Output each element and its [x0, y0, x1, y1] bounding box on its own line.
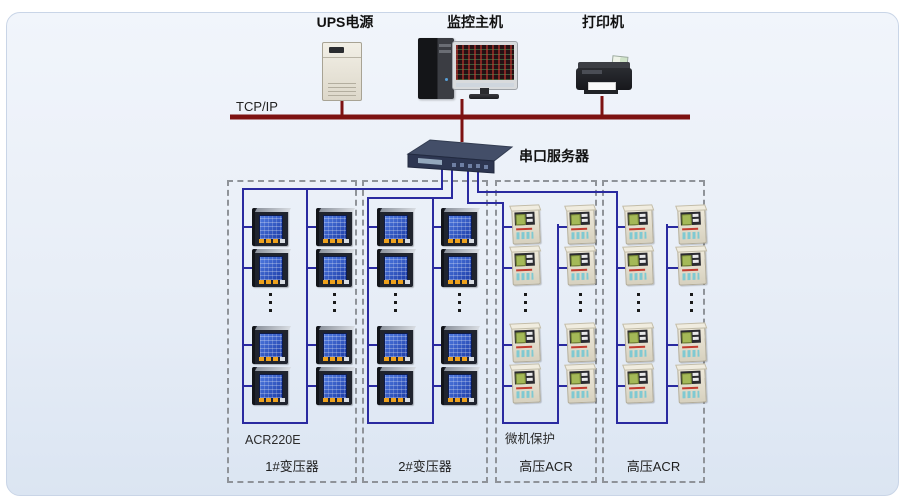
- relay-keypad: [571, 273, 588, 281]
- ellipsis-dots: [524, 293, 527, 317]
- power-meter: [377, 367, 413, 405]
- relay-lcd-screen: [628, 214, 638, 225]
- relay-lcd-screen: [628, 373, 638, 384]
- relay-panel: [627, 330, 648, 344]
- relay-label-strip: [516, 228, 532, 231]
- meter-lcd-screen: [323, 215, 347, 240]
- power-meter: [441, 326, 477, 364]
- relay-label-strip: [516, 387, 532, 390]
- relay-top-cover: [675, 245, 707, 252]
- power-meter: [377, 326, 413, 364]
- relay-panel: [627, 371, 648, 385]
- relay-label-strip: [516, 346, 532, 349]
- meter-buttons: [323, 357, 349, 361]
- meter-lcd-screen: [448, 256, 472, 281]
- power-meter: [316, 208, 352, 246]
- relay-lcd-screen: [515, 214, 525, 225]
- serial-server-device: [404, 134, 516, 176]
- protection-relay-meter: [677, 325, 707, 362]
- ellipsis-dots: [690, 293, 693, 317]
- relay-lcd-screen: [681, 255, 691, 266]
- meter-buttons: [384, 280, 410, 284]
- printer-device: [576, 56, 632, 97]
- power-meter: [316, 249, 352, 287]
- relay-keypad: [571, 232, 588, 240]
- serial-server-graphic: [404, 134, 516, 176]
- ellipsis-dots: [394, 293, 397, 317]
- relay-label-strip: [571, 269, 587, 272]
- monitor-bezel: [452, 41, 518, 90]
- relay-panel: [514, 371, 535, 385]
- relay-panel: [680, 371, 701, 385]
- power-meter: [377, 208, 413, 246]
- relay-lcd-screen: [515, 255, 525, 266]
- relay-panel: [680, 253, 701, 267]
- protection-relay-meter: [566, 325, 596, 362]
- meter-top-bezel: [255, 367, 291, 371]
- power-meter: [441, 249, 477, 287]
- meter-buttons: [448, 280, 474, 284]
- meter-lcd-screen: [384, 256, 408, 281]
- relay-lcd-screen: [570, 255, 580, 266]
- meter-top-bezel: [255, 326, 291, 330]
- relay-lcd-screen: [570, 214, 580, 225]
- relay-top-cover: [675, 322, 707, 329]
- relay-keypad: [629, 232, 646, 240]
- protection-relay-meter: [511, 366, 541, 403]
- relay-top-cover: [622, 204, 654, 211]
- relay-top-cover: [564, 245, 596, 252]
- relay-label-strip: [629, 346, 645, 349]
- protection-relay-meter: [566, 207, 596, 244]
- power-meter: [441, 367, 477, 405]
- protection-relay-meter: [566, 366, 596, 403]
- meter-lcd-screen: [259, 333, 283, 358]
- relay-keypad: [571, 350, 588, 358]
- relay-keypad: [629, 391, 646, 399]
- relay-keypad: [682, 273, 699, 281]
- meter-lcd-screen: [448, 374, 472, 399]
- power-meter: [377, 249, 413, 287]
- meter-top-bezel: [255, 208, 291, 212]
- relay-panel: [627, 212, 648, 226]
- ellipsis-dots: [637, 293, 640, 317]
- power-meter: [252, 249, 288, 287]
- monitor-host-label: 监控主机: [405, 12, 545, 32]
- relay-keypad: [516, 273, 533, 281]
- meter-lcd-screen: [259, 256, 283, 281]
- meter-top-bezel: [444, 249, 480, 253]
- meter-top-bezel: [319, 208, 355, 212]
- protection-relay-meter: [624, 366, 654, 403]
- meter-buttons: [259, 398, 285, 402]
- relay-panel: [680, 212, 701, 226]
- relay-top-cover: [622, 322, 654, 329]
- meter-buttons: [448, 398, 474, 402]
- meter-lcd-screen: [323, 374, 347, 399]
- relay-top-cover: [675, 204, 707, 211]
- relay-top-cover: [509, 204, 541, 211]
- monitor-stand-base: [469, 94, 499, 99]
- relay-lcd-screen: [681, 214, 691, 225]
- power-meter: [252, 326, 288, 364]
- ellipsis-dots: [579, 293, 582, 317]
- meter-top-bezel: [380, 208, 416, 212]
- relay-keypad: [571, 391, 588, 399]
- meter-buttons: [448, 357, 474, 361]
- host-tower-device: [418, 38, 454, 99]
- power-meter: [441, 208, 477, 246]
- diagram-canvas: UPS电源 监控主机 打印机 TCP/IP 串口服务器: [0, 0, 905, 503]
- relay-keypad: [516, 391, 533, 399]
- relay-top-cover: [564, 363, 596, 370]
- power-meter: [252, 208, 288, 246]
- meter-buttons: [323, 239, 349, 243]
- relay-label-strip: [682, 228, 698, 231]
- meter-top-bezel: [444, 326, 480, 330]
- tower-power-led: [445, 78, 448, 81]
- meter-buttons: [384, 239, 410, 243]
- meter-lcd-screen: [448, 215, 472, 240]
- meter-buttons: [259, 280, 285, 284]
- protection-relay-meter: [566, 248, 596, 285]
- relay-label-strip: [682, 269, 698, 272]
- protection-relay-meter: [624, 207, 654, 244]
- meter-top-bezel: [380, 367, 416, 371]
- power-meter: [316, 326, 352, 364]
- relay-label-strip: [629, 387, 645, 390]
- power-meter: [252, 367, 288, 405]
- relay-label-strip: [571, 346, 587, 349]
- relay-panel: [627, 253, 648, 267]
- relay-panel: [569, 212, 590, 226]
- relay-panel: [514, 330, 535, 344]
- meter-buttons: [259, 357, 285, 361]
- relay-top-cover: [622, 245, 654, 252]
- protection-relay-meter: [511, 325, 541, 362]
- relay-label-strip: [629, 269, 645, 272]
- printer-tray: [584, 90, 618, 94]
- relay-top-cover: [509, 363, 541, 370]
- meter-buttons: [323, 398, 349, 402]
- relay-lcd-screen: [628, 255, 638, 266]
- relay-lcd-screen: [570, 332, 580, 343]
- relay-label-strip: [682, 387, 698, 390]
- relay-lcd-screen: [681, 332, 691, 343]
- monitor-scada-screen: [456, 45, 514, 80]
- meter-top-bezel: [380, 326, 416, 330]
- meter-lcd-screen: [323, 333, 347, 358]
- relay-top-cover: [564, 204, 596, 211]
- relay-top-cover: [509, 322, 541, 329]
- ups-divider: [323, 57, 361, 58]
- relay-lcd-screen: [681, 373, 691, 384]
- meter-buttons: [384, 357, 410, 361]
- relay-label-strip: [682, 346, 698, 349]
- meter-buttons: [384, 398, 410, 402]
- ellipsis-dots: [333, 293, 336, 317]
- relay-top-cover: [675, 363, 707, 370]
- meter-top-bezel: [319, 249, 355, 253]
- ellipsis-dots: [458, 293, 461, 317]
- protection-relay-meter: [624, 325, 654, 362]
- meter-lcd-screen: [259, 374, 283, 399]
- tower-drive-slot: [439, 50, 451, 53]
- protection-relay-meter: [624, 248, 654, 285]
- ellipsis-dots: [269, 293, 272, 317]
- relay-panel: [514, 253, 535, 267]
- relay-panel: [569, 371, 590, 385]
- ups-display: [329, 47, 344, 53]
- relay-label-strip: [571, 228, 587, 231]
- meter-top-bezel: [319, 326, 355, 330]
- protection-relay-meter: [677, 366, 707, 403]
- relay-top-cover: [564, 322, 596, 329]
- relay-keypad: [682, 232, 699, 240]
- meter-buttons: [323, 280, 349, 284]
- relay-lcd-screen: [570, 373, 580, 384]
- relay-top-cover: [509, 245, 541, 252]
- meter-lcd-screen: [323, 256, 347, 281]
- relay-label-strip: [571, 387, 587, 390]
- relay-lcd-screen: [515, 332, 525, 343]
- serial-server-label: 串口服务器: [519, 146, 589, 166]
- monitor-toolbar: [456, 83, 514, 87]
- relay-panel: [569, 253, 590, 267]
- meter-lcd-screen: [259, 215, 283, 240]
- relay-panel: [514, 212, 535, 226]
- relay-keypad: [516, 350, 533, 358]
- relay-keypad: [629, 273, 646, 281]
- protection-relay-meter: [511, 207, 541, 244]
- host-monitor-device: [452, 41, 516, 101]
- tower-drive-slot: [439, 44, 451, 47]
- meter-top-bezel: [319, 367, 355, 371]
- meter-lcd-screen: [448, 333, 472, 358]
- relay-panel: [569, 330, 590, 344]
- ups-device: [322, 42, 362, 101]
- ups-vents: [328, 80, 356, 96]
- tcpip-bus-label: TCP/IP: [236, 99, 278, 114]
- relay-keypad: [682, 350, 699, 358]
- protection-relay-meter: [677, 248, 707, 285]
- meter-top-bezel: [380, 249, 416, 253]
- relay-top-cover: [622, 363, 654, 370]
- meter-top-bezel: [444, 208, 480, 212]
- ups-label: UPS电源: [275, 12, 415, 32]
- meter-lcd-screen: [384, 374, 408, 399]
- meter-top-bezel: [444, 367, 480, 371]
- relay-label-strip: [629, 228, 645, 231]
- power-meter: [316, 367, 352, 405]
- relay-lcd-screen: [515, 373, 525, 384]
- meter-top-bezel: [255, 249, 291, 253]
- printer-control-panel: [582, 70, 602, 74]
- relay-panel: [680, 330, 701, 344]
- meter-buttons: [259, 239, 285, 243]
- relay-label-strip: [516, 269, 532, 272]
- relay-lcd-screen: [628, 332, 638, 343]
- meter-buttons: [448, 239, 474, 243]
- relay-keypad: [516, 232, 533, 240]
- protection-relay-meter: [677, 207, 707, 244]
- relay-keypad: [629, 350, 646, 358]
- relay-keypad: [682, 391, 699, 399]
- printer-label: 打印机: [533, 12, 673, 32]
- meter-lcd-screen: [384, 215, 408, 240]
- protection-relay-meter: [511, 248, 541, 285]
- meter-lcd-screen: [384, 333, 408, 358]
